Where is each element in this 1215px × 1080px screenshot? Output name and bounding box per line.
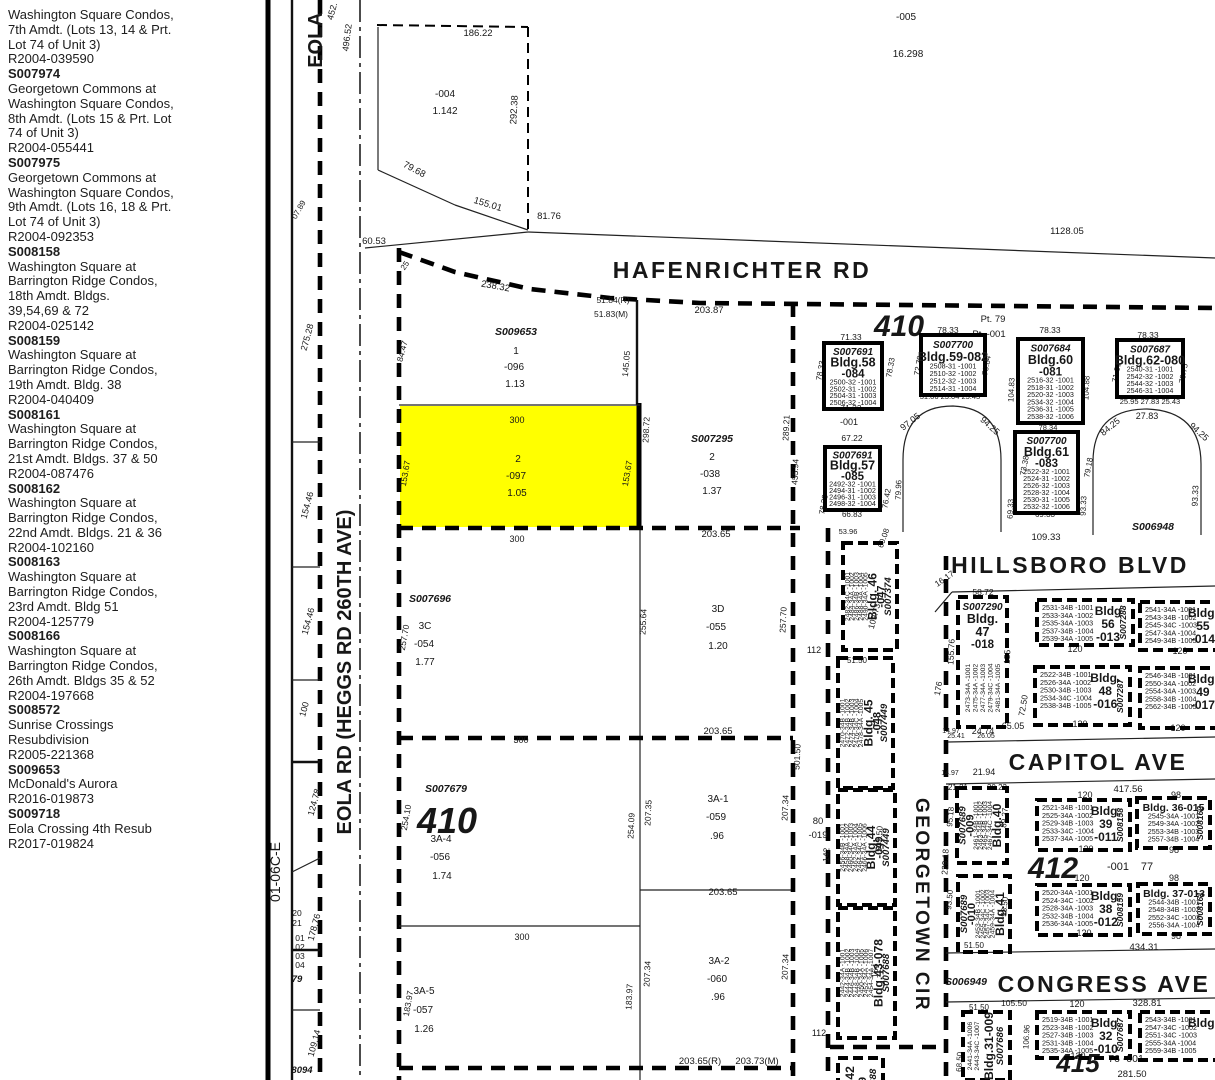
building-32: 2519-34B -10012523-34B -10022527-34B -10… — [1037, 1012, 1130, 1058]
building-44: 2456-34B -10012458-34A -10022460-34C -10… — [838, 790, 895, 905]
map-label: 300 — [509, 534, 524, 544]
map-line — [935, 592, 952, 612]
map-label: 207.34 — [779, 953, 790, 980]
map-label: 176 — [932, 680, 944, 696]
map-label: -019 — [808, 830, 827, 841]
map-label: -096 — [504, 362, 524, 373]
street-eola-rd: EOLA RD (HEGGS RD 260TH AVE) — [334, 510, 356, 835]
map-label: -054 — [414, 639, 434, 650]
map-line — [365, 232, 528, 248]
map-label: 49 — [1196, 685, 1210, 699]
map-label: 1.74 — [432, 871, 452, 882]
map-label: 186.22 — [463, 28, 492, 39]
map-label: 154.46 — [299, 491, 316, 520]
map-label: 112 — [807, 645, 821, 655]
map-label: 145.05 — [620, 350, 632, 377]
building-31: 2441-34A -10062443-34C -1007Bldg.31-009S… — [963, 1012, 1010, 1080]
map-label: -055 — [706, 622, 726, 633]
map-label: 3D — [712, 604, 725, 615]
plat-map-svg: HAFENRICHTER RDHILLSBORO BLVDCAPITOL AVE… — [0, 0, 1215, 1080]
street-hafenrichter-rd: HAFENRICHTER RD — [613, 257, 872, 283]
map-label: 67.22 — [841, 433, 863, 443]
map-label: S008162 — [1195, 806, 1205, 840]
map-label: 94.25 — [1187, 421, 1210, 444]
map-label: 207.34 — [641, 960, 652, 987]
street-hillsboro-blvd: HILLSBORO BLVD — [951, 552, 1189, 578]
map-label: S007287 — [1115, 678, 1125, 713]
map-label: -001 — [840, 417, 858, 427]
map-label: S007696 — [409, 593, 451, 605]
map-label: Bldg.42 — [843, 1066, 857, 1080]
building-38: 2520-34A -10012524-34C -10022528-34A -10… — [1037, 885, 1130, 935]
map-label: 72.50 — [1016, 694, 1030, 717]
map-label: 452. — [325, 1, 339, 21]
map-label: 2532-32 -1006 — [1023, 502, 1070, 511]
building-49: 2546-34B -10012550-34A -10022554-34A -10… — [1140, 668, 1215, 728]
map-label: S007688 — [868, 1068, 879, 1080]
map-label: 496.52 — [340, 23, 353, 52]
map-label: 20 — [292, 908, 302, 918]
building-39: 2521-34B -10012525-34A -10022529-34B -10… — [1037, 800, 1130, 850]
map-label: 77 — [1141, 861, 1153, 873]
street-georgetown-cir: GEORGETOWN CIR — [911, 798, 932, 1012]
map-label: S007374 — [883, 577, 894, 616]
map-label: 1.05 — [507, 488, 527, 499]
building-36: Bldg. 36-0152545-34A -10012549-34A -1002… — [1137, 798, 1210, 848]
map-label: S008159 — [1115, 893, 1125, 927]
map-label: 27.83 — [1136, 411, 1159, 421]
map-label: 2546-31 -1004 — [1127, 386, 1174, 395]
map-label: 1.77 — [415, 657, 435, 668]
map-label: -059 — [706, 812, 726, 823]
map-label: 2514-31 -1004 — [930, 384, 977, 393]
map-label: 2539-34A -1005 — [1042, 634, 1093, 643]
map-label: 203.73(M) — [735, 1056, 778, 1067]
map-label: 47 — [976, 625, 990, 639]
map-label: 3C — [419, 621, 432, 632]
map-label: 328.81 — [1132, 998, 1161, 1009]
map-label: 93.33 — [1189, 485, 1200, 507]
building-45: 2470-34B -10012472-34B -10022474-34B -10… — [838, 658, 893, 788]
map-label: 51.83(M) — [594, 309, 628, 319]
map-label: 94.25 — [978, 415, 1001, 438]
map-line — [292, 858, 320, 872]
map-label: -001 — [1107, 861, 1129, 873]
building-40: S007689-0092461-34B -10012463-34B -10022… — [957, 788, 1007, 863]
map-label: 238.32 — [480, 279, 511, 295]
map-label: Bldg. — [1188, 672, 1215, 686]
map-label: 51.50 — [964, 941, 985, 950]
map-label: -005 — [896, 12, 916, 23]
map-label: 71.33 — [840, 332, 862, 342]
map-label: S007288 — [1118, 605, 1128, 639]
map-label: S007679 — [425, 783, 467, 795]
building-33: 2543-34B -10012547-34C -10022551-34C -10… — [1140, 1012, 1215, 1060]
map-label: 2 — [709, 452, 715, 463]
building-37: Bldg. 37-0132544-34B -10012548-34B -1002… — [1138, 884, 1210, 934]
map-label: 2479-34C -1004 — [988, 663, 995, 712]
building-48: 2522-34B -10012526-34A -10022530-34B -10… — [1035, 667, 1130, 725]
map-label: 275.28 — [299, 323, 316, 352]
building-55: 2541-34A -10012543-34B -10022545-34C -10… — [1140, 602, 1215, 650]
map-label: 154.46 — [300, 607, 317, 636]
map-label: -018 — [971, 639, 995, 651]
map-label: 501.50 — [791, 743, 802, 770]
map-label: 93.50 — [944, 889, 955, 910]
map-label: 100 — [297, 701, 311, 718]
map-label: S007688 — [881, 953, 892, 992]
building-42: Bldg.42-079S007688 — [838, 1058, 883, 1080]
map-label: 120 — [1074, 873, 1089, 883]
map-label: 60.53 — [362, 236, 386, 247]
map-label: S009653 — [495, 326, 537, 338]
map-label: 255.64 — [637, 608, 648, 635]
map-label: 2538-32 -1006 — [1027, 412, 1074, 421]
map-label: 1.142 — [432, 106, 457, 117]
map-label: 2481-34A -1005 — [995, 664, 1002, 713]
map-label: 203.65 — [701, 529, 730, 540]
map-label: 203.65(R) — [679, 1056, 721, 1067]
map-label: S007687 — [1115, 1017, 1125, 1052]
building-60: S007684Bldg.60-0812516-32 -10012518-31 -… — [1018, 339, 1083, 423]
map-label: 203.87 — [694, 305, 723, 316]
map-label: S008158 — [1115, 808, 1125, 842]
map-label: 2557-34B -1004 — [1148, 834, 1200, 843]
building-61: S007700Bldg.61-0832522-32 -10012524-31 -… — [1015, 432, 1078, 513]
map-label: 1.37 — [702, 486, 722, 497]
map-label: 78.33 — [884, 356, 896, 378]
map-label: S007295 — [691, 433, 733, 445]
map-label: 3A-5 — [413, 986, 435, 997]
map-label: -097 — [506, 471, 526, 482]
map-label: 298.72 — [640, 416, 651, 443]
map-label: 203.65 — [703, 726, 732, 737]
plat-map-page: Washington Square Condos,7th Amdt. (Lots… — [0, 0, 1215, 1080]
map-label: 76.42 — [880, 487, 892, 509]
map-label: 207.35 — [642, 799, 653, 826]
map-label: .96 — [710, 831, 724, 842]
map-label: 229.18 — [939, 848, 950, 875]
map-line — [377, 25, 528, 27]
map-label: 106.96 — [1021, 1024, 1031, 1049]
map-label: 300 — [513, 735, 528, 745]
map-label: 3A-1 — [707, 794, 729, 805]
map-label: 3A-4 — [430, 834, 452, 845]
street-congress-ave: CONGRESS AVE — [998, 971, 1211, 997]
map-label: 300 — [509, 415, 524, 425]
map-label: 48 — [1099, 684, 1113, 698]
building-43: 2442-34A -10012444-34B -10022446-34B -10… — [838, 908, 895, 1038]
map-label: 60.08 — [876, 527, 891, 549]
map-label: Bldg. — [1188, 606, 1215, 620]
map-label: Bldg. — [967, 612, 998, 626]
map-label: S006948 — [1132, 521, 1174, 533]
map-label: 95.18 — [945, 806, 956, 827]
street-capitol-ave: CAPITOL AVE — [1009, 749, 1188, 775]
map-label: 16.298 — [893, 49, 924, 60]
map-label: 112 — [812, 1028, 826, 1038]
map-label: Bldg.31-009 — [982, 1012, 996, 1080]
map-label: 109.33 — [1031, 532, 1060, 543]
building-62: S007687Bldg.62-0802540-31 -10012542-32 -… — [1115, 340, 1185, 397]
map-label: 78.33 — [1039, 325, 1061, 335]
map-label: 81.76 — [537, 211, 561, 222]
map-label: 79 — [292, 974, 303, 985]
map-label: 281.50 — [1117, 1069, 1146, 1080]
map-label: 39 — [1099, 817, 1113, 831]
map-label: -060 — [707, 974, 727, 985]
map-label: 1 — [513, 346, 519, 357]
map-label: 2 — [515, 454, 521, 465]
map-label: Bldg.40 — [990, 803, 1004, 847]
map-label: 142 — [821, 847, 832, 862]
map-label: .96 — [711, 992, 725, 1003]
map-label: 300 — [514, 932, 529, 942]
map-label: 14.97 — [941, 770, 959, 777]
map-label: 2537-34A -1005 — [1042, 834, 1093, 843]
area-410: 410 — [873, 310, 924, 343]
map-label: 53.96 — [839, 527, 858, 536]
map-label: 2443-34C -1007 — [974, 1021, 981, 1070]
map-label: 32 — [1099, 1029, 1113, 1043]
map-label: 38 — [1099, 902, 1113, 916]
map-label: S006949 — [945, 976, 987, 988]
map-label: 417.56 — [1113, 784, 1142, 795]
map-label: 155.76 — [945, 638, 956, 665]
map-label: Bldg.61 — [1024, 445, 1069, 459]
map-label: -014 — [1191, 632, 1215, 646]
map-label: Bldg.60 — [1028, 353, 1073, 367]
map-label: 56 — [1101, 617, 1115, 631]
map-label: S007449 — [879, 703, 890, 742]
map-label: -056 — [430, 852, 450, 863]
map-label: -038 — [700, 469, 720, 480]
map-label: 1128.05 — [1050, 226, 1084, 237]
map-label: 80 — [813, 816, 824, 827]
map-label: 51.84(R) — [596, 295, 629, 305]
map-label: Bldg.41 — [993, 892, 1007, 936]
map-label: 8094 — [291, 1065, 313, 1076]
map-label: 2562-34B -1005 — [1145, 702, 1197, 711]
map-label: 2441-34A -1006 — [967, 1022, 974, 1071]
map-label: 105.50 — [1001, 998, 1027, 1008]
map-label: 1.20 — [708, 641, 728, 652]
map-label: 04 — [295, 960, 305, 970]
map-label: 21 — [292, 918, 302, 928]
map-label: 84.25 — [1098, 416, 1122, 438]
map-label: 1.26 — [414, 1024, 434, 1035]
map-label: 183.97 — [623, 983, 634, 1010]
map-label: 1.13 — [505, 379, 525, 390]
map-label: 455.94 — [789, 458, 800, 485]
map-label: -016 — [1093, 697, 1117, 711]
map-label: 97.05 — [898, 411, 922, 433]
map-label: 2477-34A -1003 — [980, 664, 987, 713]
map-line — [528, 232, 1215, 258]
map-label: 2559-34B -1005 — [1145, 1046, 1197, 1055]
map-label: 3A-2 — [708, 956, 730, 967]
map-label: -004 — [435, 89, 455, 100]
map-label: 104.83 — [1006, 377, 1016, 402]
map-label: 292.38 — [508, 95, 521, 125]
map-label: 254.09 — [625, 812, 636, 839]
map-label: 2506-32 -1004 — [830, 398, 877, 407]
map-label: 21.94 — [973, 767, 996, 777]
map-label: S007449 — [881, 828, 892, 867]
map-label: Bldg. — [1188, 1016, 1215, 1030]
map-label: 155.01 — [472, 195, 503, 214]
map-label: 14.97 — [942, 728, 960, 735]
building-59: S007700Bldg.59-0822508-31 -10012510-32 -… — [918, 335, 988, 395]
area-412: 412 — [1027, 852, 1078, 885]
map-label: 2473-34A -1001 — [965, 664, 972, 713]
building-57: S007691Bldg.57-0852492-32 -10012494-31 -… — [825, 447, 880, 510]
map-label: 79.96 — [893, 479, 903, 500]
map-label: 207.34 — [779, 794, 790, 821]
map-label: -013 — [1096, 630, 1120, 644]
building-47: S007290Bldg.47-0182473-34A -10012475-34A… — [958, 597, 1007, 727]
map-label: 2556-34A -1004 — [1148, 920, 1199, 929]
street-eola: EOLA — [305, 12, 327, 68]
map-label: 120 — [1069, 999, 1084, 1009]
map-label: 2538-34B -1005 — [1040, 701, 1092, 710]
map-label: 203.65 — [708, 887, 737, 898]
building-56: 2531-34B -10012533-34A -10022535-34A -10… — [1037, 600, 1133, 645]
map-label: Pt. 79 — [981, 314, 1006, 325]
map-label: 98 — [1169, 873, 1179, 883]
map-label: 289.21 — [780, 414, 791, 441]
map-label: -017 — [1191, 698, 1215, 712]
map-label: 2549-34B -1005 — [1145, 636, 1197, 645]
map-label: S008161 — [1195, 892, 1205, 926]
section-id: 01-06C-E — [267, 842, 283, 902]
map-label: 79.68 — [401, 159, 427, 180]
map-label: 2535-34A -1005 — [1042, 1046, 1093, 1055]
building-58: S007691Bldg.58-0842500-32 -10012502-31 -… — [824, 343, 882, 409]
map-label: 2475-34A -1002 — [973, 664, 980, 713]
map-label: S007686 — [995, 1026, 1006, 1065]
building-46: 2482-34C -10012484-34A -10022486-34B -10… — [843, 543, 897, 650]
map-label: 2498-32 -1004 — [829, 499, 876, 508]
map-label: 257.70 — [777, 606, 788, 633]
map-label: 434.31 — [1129, 942, 1158, 953]
map-label: 2536-34A -1005 — [1042, 919, 1093, 928]
map-label: 55 — [1196, 619, 1210, 633]
map-label: -057 — [413, 1005, 433, 1016]
